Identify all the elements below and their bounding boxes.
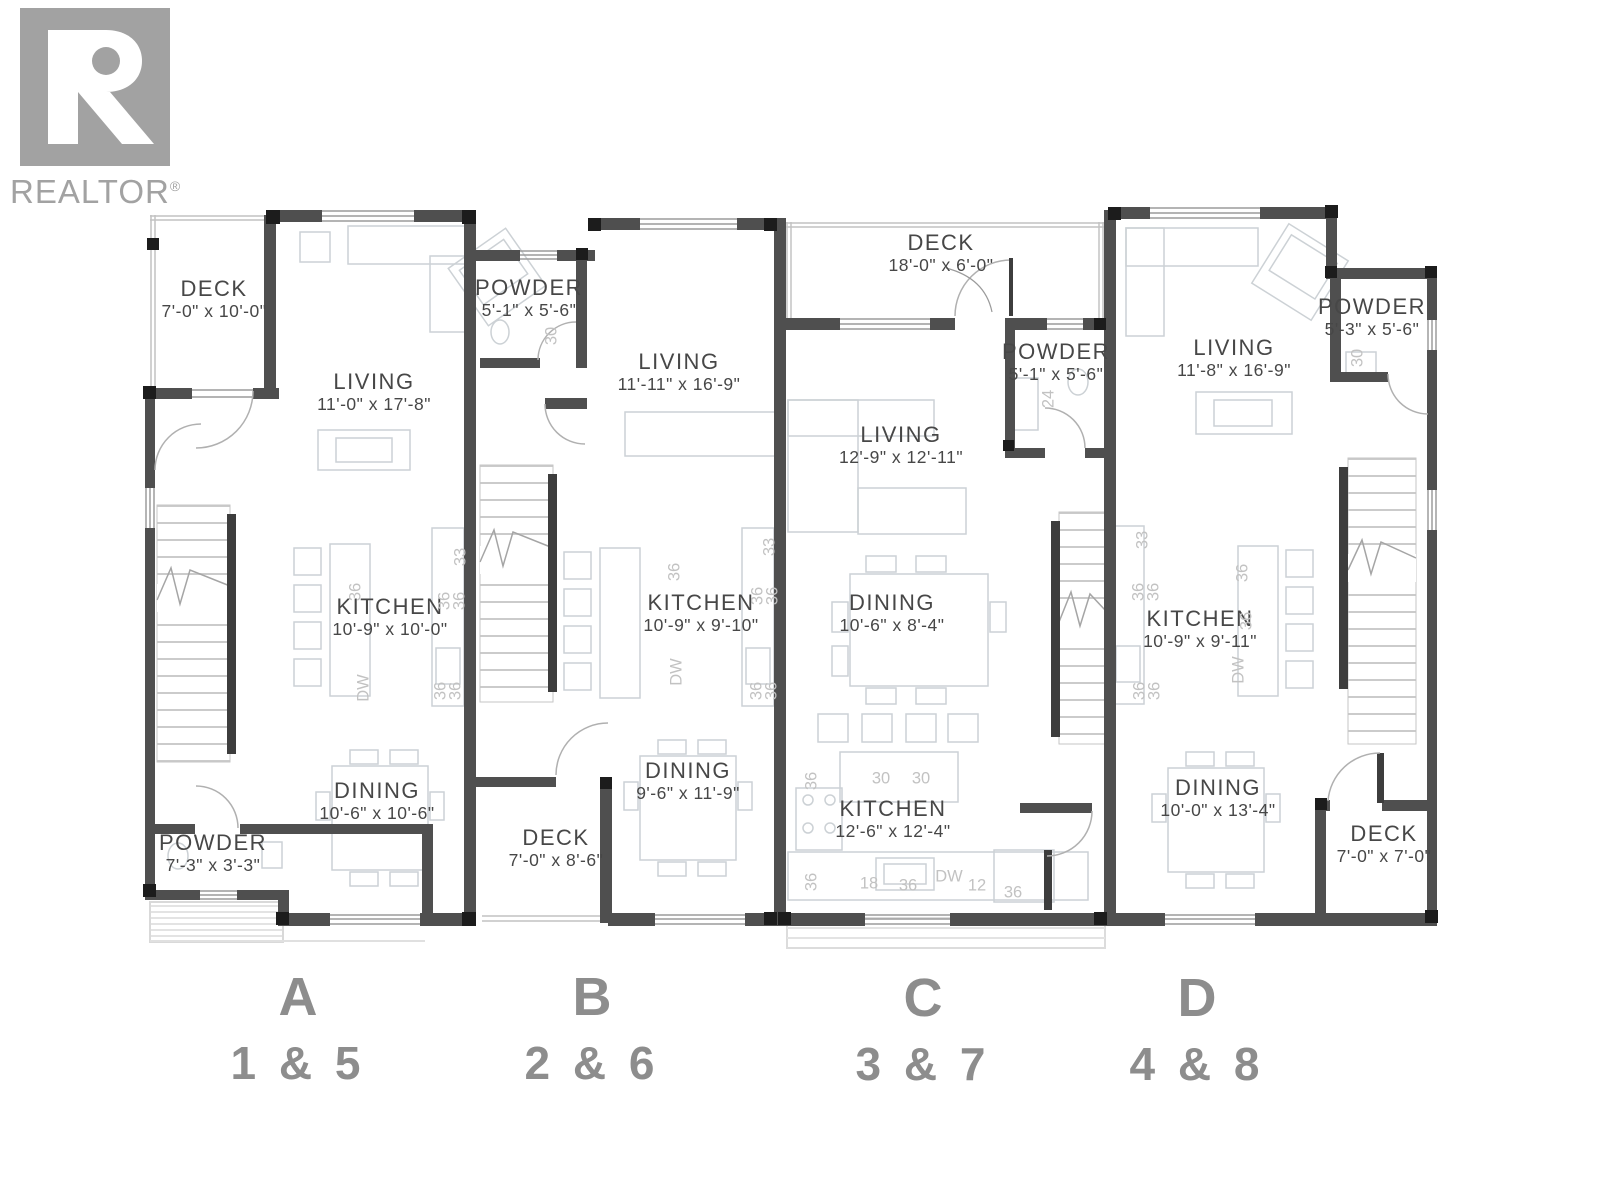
room-dims: 7'-0" x 8'-6" — [509, 851, 604, 871]
room-name: LIVING — [1177, 336, 1291, 361]
unit-letter: C — [856, 971, 991, 1025]
room-name: DECK — [162, 277, 267, 302]
room-dims: 7'-0" x 10'-0" — [162, 302, 267, 322]
cabinet-size-label: 33 — [1134, 531, 1153, 549]
cabinet-size-label: 36 — [763, 682, 782, 700]
room-dims: 7'-0" x 7'-0" — [1337, 847, 1432, 867]
dishwasher-label: DW — [935, 868, 963, 887]
room-dims: 11'-0" x 17'-8" — [317, 395, 431, 415]
room-label-a-dining: DINING 10'-6" x 10'-6" — [319, 779, 434, 823]
unit-c-label: C 3 & 7 — [856, 971, 991, 1087]
dishwasher-label: DW — [668, 658, 687, 686]
cabinet-size-label: 30 — [1349, 349, 1368, 367]
room-dims: 5'-1" x 5'-6" — [475, 301, 583, 321]
cabinet-size-label: 36 — [764, 587, 783, 605]
room-label-a-living: LIVING 11'-0" x 17'-8" — [317, 370, 431, 414]
room-label-c-powder: POWDER 5'-1" x 5'-6" — [1002, 340, 1110, 384]
room-dims: 10'-6" x 10'-6" — [319, 804, 434, 824]
realtor-wordmark: REALTOR — [10, 173, 170, 210]
cabinet-size-label: 36 — [1146, 682, 1165, 700]
dishwasher-label: DW — [355, 674, 374, 702]
room-dims: 10'-9" x 9'-11" — [1143, 632, 1257, 652]
unit-b-label: B 2 & 6 — [525, 970, 660, 1086]
cabinet-size-label: 36 — [451, 592, 470, 610]
room-dims: 10'-0" x 13'-4" — [1160, 801, 1275, 821]
room-label-d-powder: POWDER 5'-3" x 5'-6" — [1318, 295, 1426, 339]
cabinet-size-label: 30 — [543, 327, 562, 345]
unit-numbers: 3 & 7 — [856, 1041, 991, 1087]
room-label-b-powder: POWDER 5'-1" x 5'-6" — [475, 276, 583, 320]
cabinet-size-label: 36 — [899, 877, 917, 896]
cabinet-size-label: 36 — [666, 563, 685, 581]
room-name: KITCHEN — [643, 591, 758, 616]
room-name: DECK — [509, 826, 604, 851]
room-dims: 10'-9" x 10'-0" — [332, 620, 447, 640]
cabinet-size-label: 36 — [1145, 583, 1164, 601]
cabinet-size-label: 36 — [447, 682, 466, 700]
realtor-logo: REALTOR® — [10, 8, 200, 211]
cabinet-size-label: 24 — [1040, 390, 1059, 408]
realtor-logo-text: REALTOR® — [10, 173, 200, 211]
cabinet-size-label: 36 — [1234, 564, 1253, 582]
cabinet-size-label: 36 — [1004, 884, 1022, 903]
cabinet-size-label: 18 — [860, 875, 878, 894]
room-dims: 10'-6" x 8'-4" — [840, 616, 945, 636]
room-name: DECK — [1337, 822, 1432, 847]
unit-letter: D — [1130, 971, 1265, 1025]
floor-plan-page: REALTOR® DECK 7'-0" x 10'-0" LIVING 11'-… — [0, 0, 1600, 1200]
room-label-d-living: LIVING 11'-8" x 16'-9" — [1177, 336, 1291, 380]
unit-letter: A — [231, 970, 366, 1024]
room-label-c-dining: DINING 10'-6" x 8'-4" — [840, 591, 945, 635]
room-dims: 10'-9" x 9'-10" — [643, 616, 758, 636]
room-label-b-living: LIVING 11'-11" x 16'-9" — [618, 350, 741, 394]
dishwasher-label: DW — [1230, 656, 1249, 684]
unit-d-label: D 4 & 8 — [1130, 971, 1265, 1087]
realtor-r-icon — [20, 8, 170, 166]
room-label-b-dining: DINING 9'-6" x 11'-9" — [636, 759, 740, 803]
room-name: DECK — [889, 231, 994, 256]
room-label-a-deck: DECK 7'-0" x 10'-0" — [162, 277, 267, 321]
room-dims: 9'-6" x 11'-9" — [636, 784, 740, 804]
room-label-c-deck: DECK 18'-0" x 6'-0" — [889, 231, 994, 275]
cabinet-size-label: 36 — [803, 772, 822, 790]
unit-numbers: 2 & 6 — [525, 1040, 660, 1086]
cabinet-size-label: 36 — [347, 583, 366, 601]
room-dims: 11'-8" x 16'-9" — [1177, 361, 1291, 381]
room-dims: 5'-3" x 5'-6" — [1318, 320, 1426, 340]
room-dims: 7'-3" x 3'-3" — [159, 856, 267, 876]
registered-mark: ® — [170, 178, 181, 194]
cabinet-size-label: 33 — [452, 548, 471, 566]
room-name: DINING — [1160, 776, 1275, 801]
room-label-a-kitchen: KITCHEN 10'-9" x 10'-0" — [332, 595, 447, 639]
room-name: POWDER — [1002, 340, 1110, 365]
cabinet-size-label: 36 — [803, 873, 822, 891]
room-dims: 18'-0" x 6'-0" — [889, 256, 994, 276]
room-dims: 12'-9" x 12'-11" — [839, 448, 963, 468]
room-name: DINING — [840, 591, 945, 616]
room-label-c-living: LIVING 12'-9" x 12'-11" — [839, 423, 963, 467]
room-name: POWDER — [1318, 295, 1426, 320]
room-name: POWDER — [159, 831, 267, 856]
room-label-b-deck: DECK 7'-0" x 8'-6" — [509, 826, 604, 870]
unit-numbers: 1 & 5 — [231, 1040, 366, 1086]
cabinet-size-label: 12 — [968, 877, 986, 896]
room-label-d-dining: DINING 10'-0" x 13'-4" — [1160, 776, 1275, 820]
room-label-c-kitchen: KITCHEN 12'-6" x 12'-4" — [835, 797, 950, 841]
cabinet-size-label: 30 — [912, 770, 930, 789]
room-name: KITCHEN — [835, 797, 950, 822]
unit-numbers: 4 & 8 — [1130, 1041, 1265, 1087]
room-name: LIVING — [839, 423, 963, 448]
room-label-a-powder: POWDER 7'-3" x 3'-3" — [159, 831, 267, 875]
room-dims: 5'-1" x 5'-6" — [1002, 365, 1110, 385]
room-dims: 11'-11" x 16'-9" — [618, 375, 741, 395]
room-name: LIVING — [618, 350, 741, 375]
room-label-d-deck: DECK 7'-0" x 7'-0" — [1337, 822, 1432, 866]
room-dims: 12'-6" x 12'-4" — [835, 822, 950, 842]
cabinet-size-label: 36 — [1238, 612, 1257, 630]
room-name: DINING — [636, 759, 740, 784]
room-label-b-kitchen: KITCHEN 10'-9" x 9'-10" — [643, 591, 758, 635]
cabinet-size-label: 33 — [761, 538, 780, 556]
room-name: DINING — [319, 779, 434, 804]
unit-letter: B — [525, 970, 660, 1024]
room-name: POWDER — [475, 276, 583, 301]
unit-a-label: A 1 & 5 — [231, 970, 366, 1086]
cabinet-size-label: 30 — [872, 770, 890, 789]
room-name: LIVING — [317, 370, 431, 395]
